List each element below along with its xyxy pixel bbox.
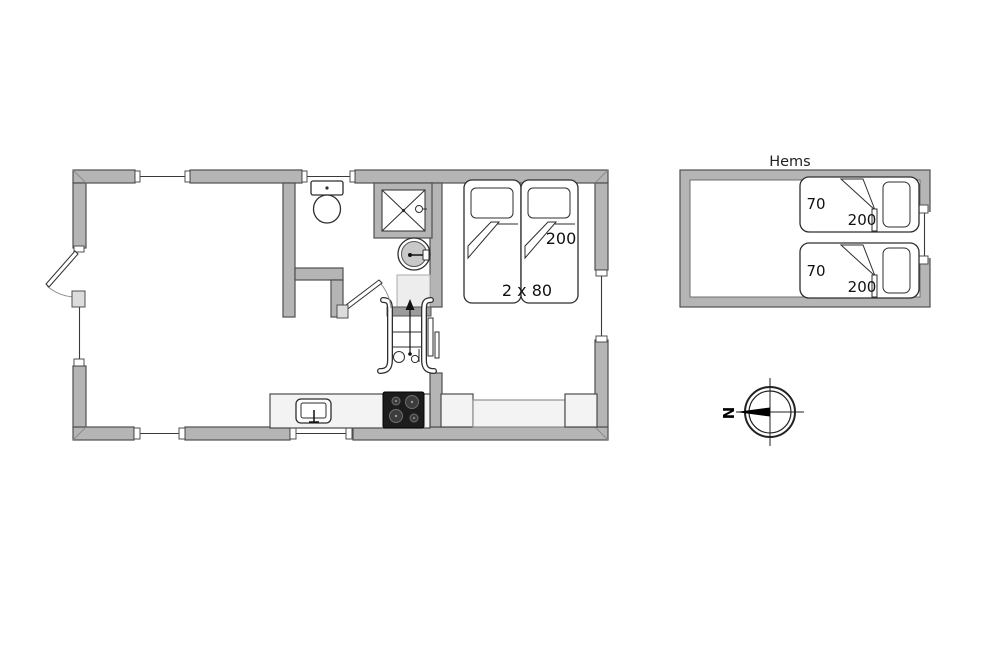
shower (374, 183, 432, 238)
window-bottom-left (134, 428, 185, 439)
pillow (883, 182, 910, 227)
floorplan-page: 200 2 x 80 Hems 70 200 (0, 0, 1000, 667)
hems-bed2-length-label: 200 (848, 278, 877, 296)
north-arrow-icon (736, 408, 770, 417)
hems-bed1-width-label: 70 (806, 195, 825, 213)
pillow (471, 188, 513, 218)
hems-bed-top: 70 200 (800, 177, 919, 232)
bed-size-label: 2 x 80 (502, 281, 552, 300)
loft-ladder (380, 275, 439, 371)
window-right-bedroom (596, 270, 607, 342)
hems-window-right (919, 205, 931, 264)
hems-bed2-width-label: 70 (806, 262, 825, 280)
bed-length-label: 200 (546, 229, 577, 248)
entry-door (46, 246, 85, 307)
hems-floorplan: Hems 70 200 70 200 (680, 154, 931, 307)
bedroom-beds: 200 2 x 80 (464, 180, 578, 303)
window-left-living (74, 306, 84, 366)
compass-north-label: N (720, 407, 738, 420)
pillow (528, 188, 570, 218)
main-floorplan: 200 2 x 80 (46, 170, 608, 440)
stove (383, 392, 424, 428)
washbasin (398, 238, 430, 270)
compass-rose: N (720, 378, 804, 446)
hems-bed1-length-label: 200 (848, 211, 877, 229)
bedroom-bench (441, 394, 597, 427)
toilet (311, 181, 343, 223)
hems-title: Hems (769, 154, 811, 170)
window-bottom-kitchen (290, 428, 352, 439)
hems-bed-bottom: 70 200 (800, 243, 919, 298)
floorplan-drawing: 200 2 x 80 Hems 70 200 (0, 0, 1000, 667)
pillow (883, 248, 910, 293)
kitchen-sink (296, 399, 331, 423)
window-top-left (135, 171, 190, 182)
